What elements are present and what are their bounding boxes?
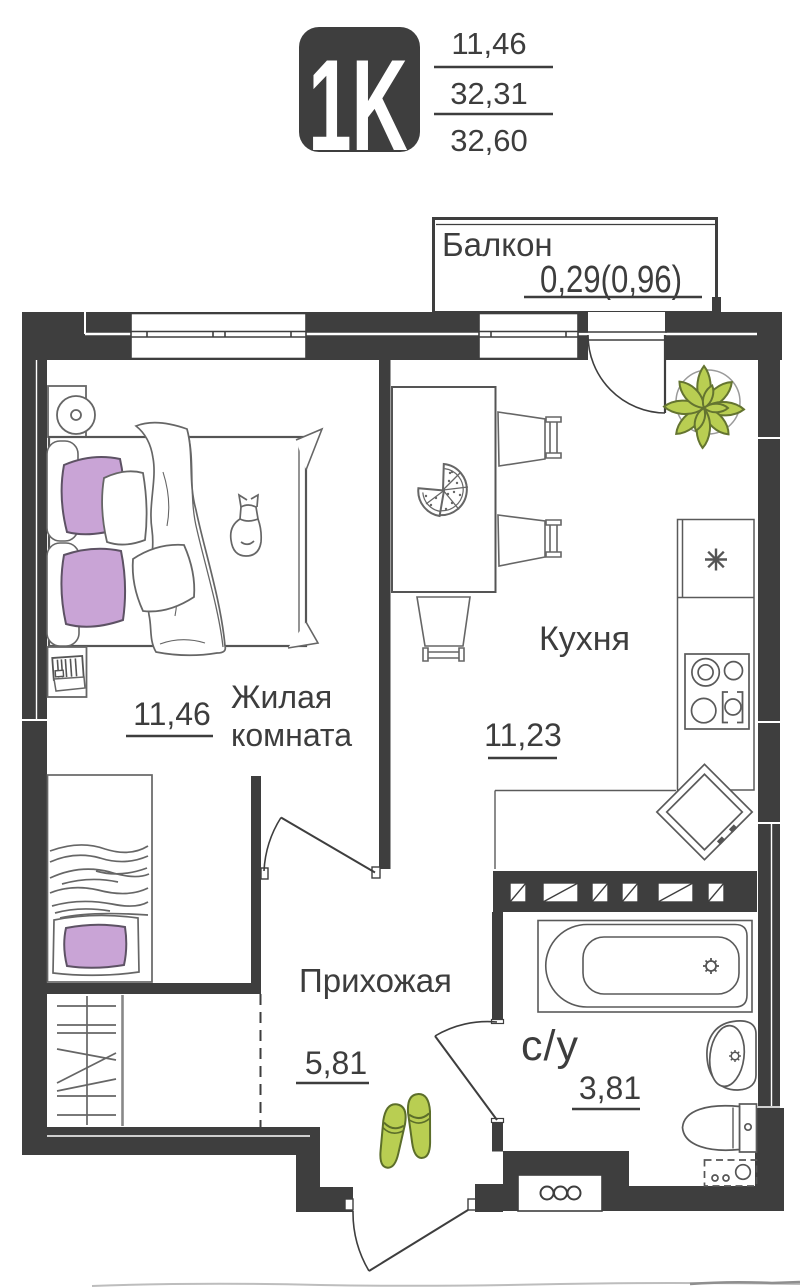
svg-text:Жилая: Жилая (231, 679, 332, 715)
svg-text:11,46: 11,46 (133, 696, 211, 732)
svg-text:11,46: 11,46 (451, 26, 526, 61)
svg-text:0,29(0,96): 0,29(0,96) (540, 259, 682, 301)
svg-text:3,81: 3,81 (579, 1070, 641, 1106)
svg-text:5,81: 5,81 (305, 1045, 367, 1081)
svg-text:Балкон: Балкон (442, 226, 553, 263)
svg-text:11,23: 11,23 (484, 717, 562, 753)
svg-text:32,31: 32,31 (450, 76, 528, 111)
svg-text:Прихожая: Прихожая (299, 962, 452, 999)
svg-text:комната: комната (231, 717, 352, 753)
svg-text:с/у: с/у (521, 1022, 579, 1070)
svg-text:Кухня: Кухня (539, 620, 630, 658)
svg-text:1K: 1K (308, 32, 408, 178)
svg-text:32,60: 32,60 (450, 123, 528, 158)
